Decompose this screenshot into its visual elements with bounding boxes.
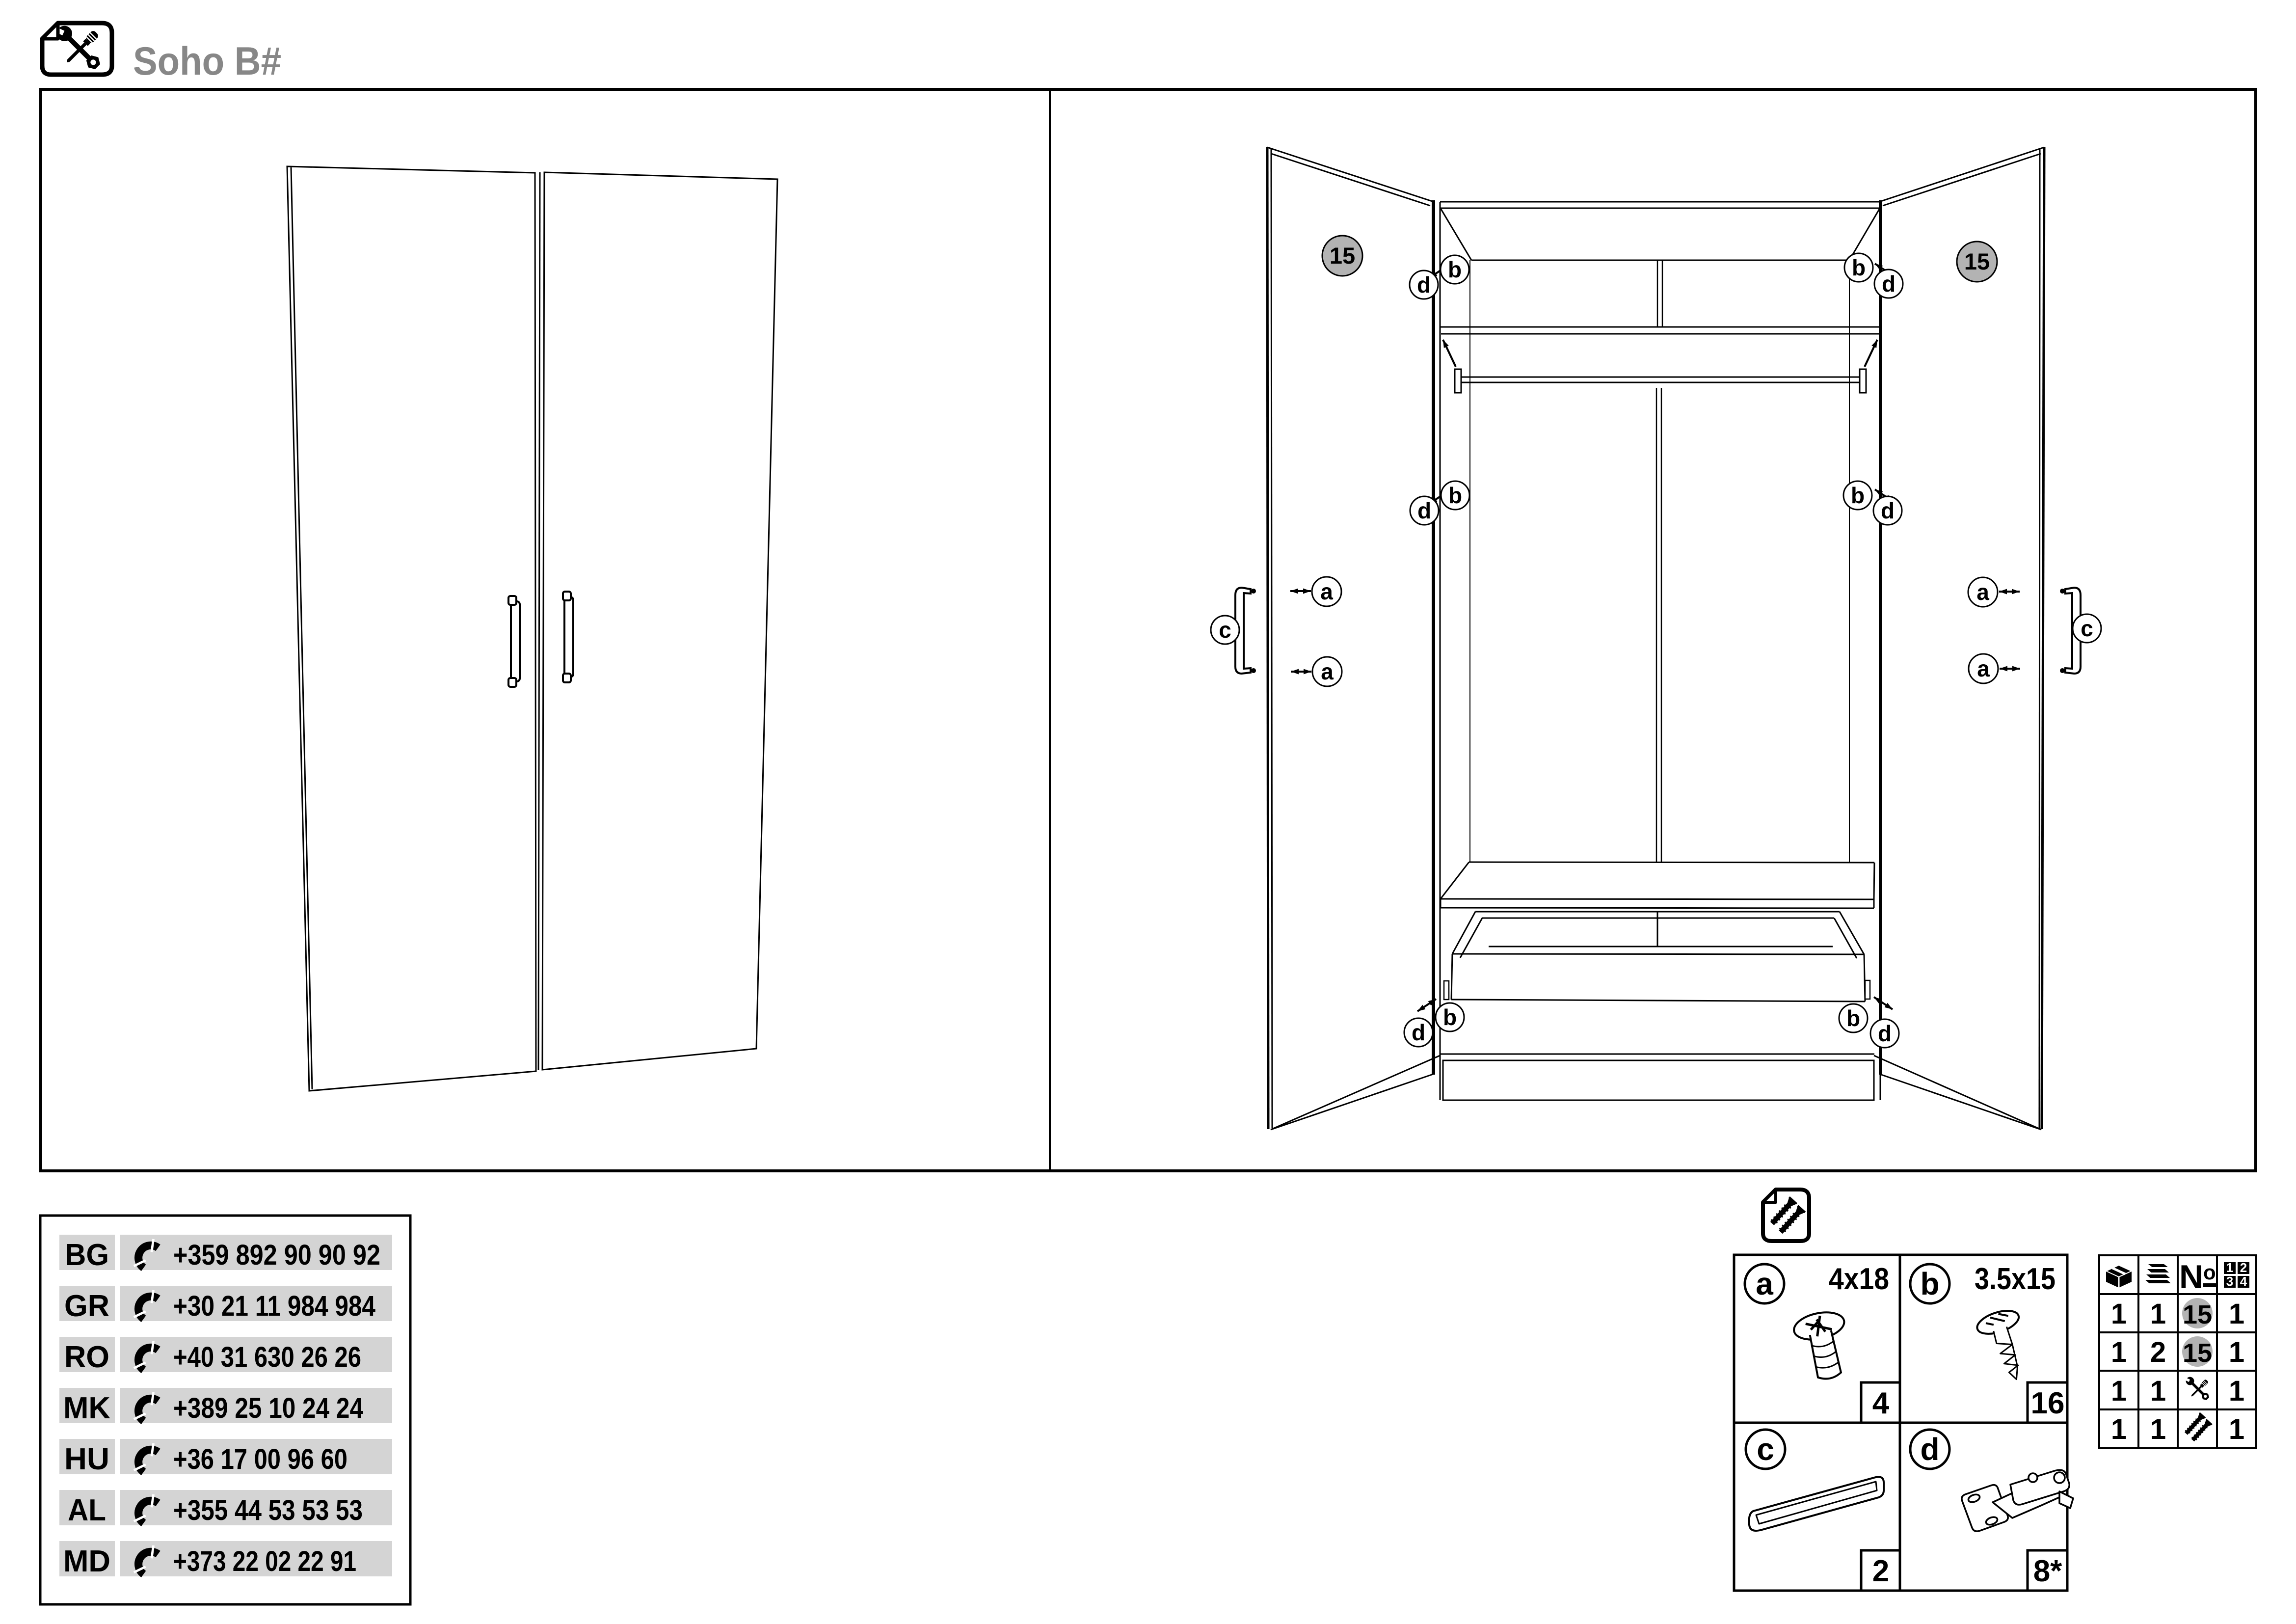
- svg-text:c: c: [1757, 1432, 1774, 1467]
- svg-text:d: d: [1878, 1021, 1892, 1046]
- svg-text:2: 2: [1872, 1554, 1889, 1588]
- svg-text:1: 1: [2111, 1298, 2127, 1330]
- svg-text:MD: MD: [63, 1544, 110, 1578]
- svg-text:+389 25 10 24 24: +389 25 10 24 24: [173, 1392, 363, 1424]
- svg-text:3.5x15: 3.5x15: [1975, 1262, 2056, 1296]
- svg-text:1: 1: [2229, 1413, 2244, 1445]
- svg-text:1: 1: [2111, 1336, 2127, 1368]
- svg-text:AL: AL: [68, 1493, 106, 1527]
- svg-text:1: 1: [2111, 1375, 2127, 1407]
- svg-text:+355 44 53 53 53: +355 44 53 53 53: [173, 1494, 363, 1526]
- svg-text:+359 892 90 90 92: +359 892 90 90 92: [173, 1239, 380, 1271]
- svg-text:GR: GR: [64, 1289, 109, 1323]
- svg-text:RO: RO: [64, 1340, 109, 1374]
- svg-text:15: 15: [2183, 1300, 2212, 1329]
- svg-text:16: 16: [2031, 1386, 2065, 1420]
- svg-text:a: a: [1977, 656, 1990, 681]
- svg-text:d: d: [1417, 272, 1431, 298]
- svg-text:4: 4: [1872, 1386, 1890, 1420]
- svg-text:a: a: [1320, 579, 1333, 604]
- svg-text:Soho B#: Soho B#: [133, 39, 281, 83]
- svg-text:1: 1: [2229, 1375, 2244, 1407]
- svg-text:+373 22 02 22 91: +373 22 02 22 91: [173, 1545, 356, 1577]
- svg-text:d: d: [1881, 498, 1895, 523]
- svg-text:+30 21 11 984 984: +30 21 11 984 984: [173, 1290, 375, 1322]
- svg-text:b: b: [1852, 255, 1866, 280]
- svg-text:1: 1: [2111, 1413, 2127, 1445]
- svg-text:c: c: [1219, 617, 1231, 643]
- svg-text:a: a: [1756, 1266, 1773, 1301]
- svg-text:3: 3: [2226, 1274, 2233, 1289]
- svg-text:b: b: [1920, 1266, 1939, 1301]
- svg-text:4x18: 4x18: [1829, 1262, 1889, 1296]
- svg-text:+36 17 00 96 60: +36 17 00 96 60: [173, 1443, 347, 1475]
- svg-text:1: 1: [2226, 1260, 2233, 1275]
- svg-text:c: c: [2081, 616, 2093, 641]
- svg-text:d: d: [1412, 1020, 1425, 1045]
- svg-text:8*: 8*: [2033, 1554, 2062, 1588]
- svg-text:b: b: [1443, 1004, 1457, 1030]
- svg-text:15: 15: [1964, 248, 1990, 274]
- svg-text:d: d: [1920, 1432, 1939, 1467]
- svg-text:1: 1: [2150, 1298, 2166, 1330]
- svg-text:1: 1: [2229, 1298, 2244, 1330]
- svg-text:N: N: [2179, 1258, 2203, 1296]
- svg-text:1: 1: [2150, 1413, 2166, 1445]
- svg-text:d: d: [1882, 271, 1896, 297]
- svg-text:2: 2: [2240, 1260, 2247, 1275]
- svg-text:1: 1: [2229, 1336, 2244, 1368]
- svg-text:b: b: [1851, 483, 1865, 508]
- svg-text:4: 4: [2240, 1274, 2247, 1289]
- svg-text:b: b: [1448, 257, 1462, 282]
- svg-text:a: a: [1976, 579, 1989, 605]
- svg-text:1: 1: [2150, 1375, 2166, 1407]
- svg-text:BG: BG: [65, 1238, 109, 1272]
- svg-text:15: 15: [1330, 243, 1355, 269]
- svg-text:MK: MK: [63, 1391, 110, 1425]
- svg-text:b: b: [1846, 1005, 1860, 1031]
- svg-text:15: 15: [2183, 1338, 2212, 1368]
- svg-text:a: a: [1321, 659, 1334, 684]
- svg-text:+40 31 630 26 26: +40 31 630 26 26: [173, 1341, 361, 1373]
- svg-text:HU: HU: [64, 1442, 109, 1476]
- svg-text:d: d: [1417, 498, 1431, 523]
- svg-text:o: o: [2203, 1261, 2216, 1284]
- svg-text:b: b: [1448, 483, 1462, 508]
- svg-text:2: 2: [2150, 1336, 2166, 1368]
